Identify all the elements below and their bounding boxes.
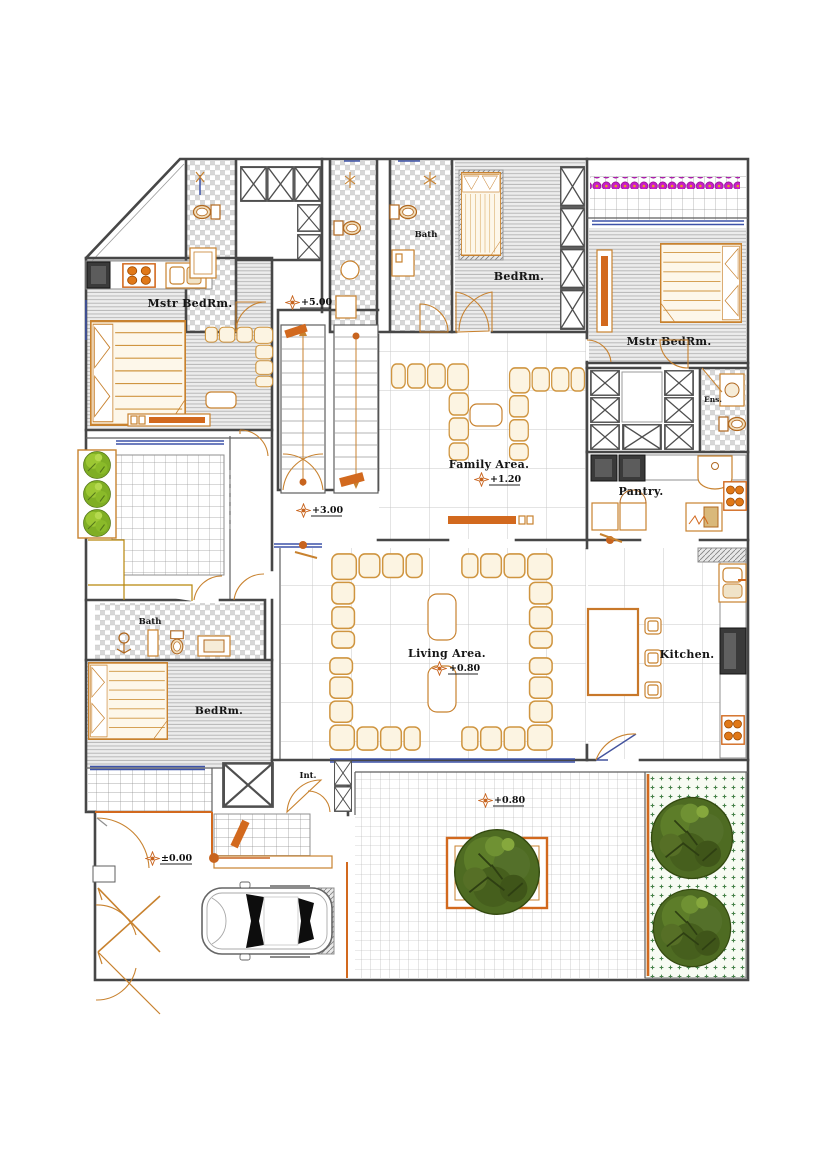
wardrobe-icon <box>335 787 352 811</box>
bed-icon <box>89 663 168 739</box>
wardrobe-icon <box>623 425 661 449</box>
coffee-table-icon <box>428 594 456 640</box>
wardrobe-icon <box>591 398 619 422</box>
bush-icon <box>84 481 111 508</box>
family-area-label: Family Area. <box>449 458 529 471</box>
appliance-highlight <box>91 266 106 284</box>
fridge-highlight <box>724 633 736 669</box>
level-grade: ±0.00 <box>146 852 193 865</box>
dressing-room <box>591 371 693 449</box>
wardrobe-icon <box>224 763 273 806</box>
tall-wardrobe-icon <box>597 250 612 332</box>
mstr-bedroom-right-label: Mstr BedRm. <box>627 335 712 348</box>
cabinet-knob <box>396 254 402 262</box>
toilet-icon <box>171 631 184 654</box>
bedroom-top-label: BedRm. <box>494 270 544 283</box>
cabinet-icon <box>392 250 414 276</box>
entry-door-arc <box>287 780 321 812</box>
vanity-icon <box>198 636 230 656</box>
pantry-cooktop-icon <box>724 482 746 510</box>
basin-icon <box>341 261 359 279</box>
gate-icons <box>93 818 160 1014</box>
bath-top-label: Bath <box>415 230 438 240</box>
column-dot <box>209 853 219 863</box>
bath-top-floor <box>390 161 452 332</box>
wardrobe-icon <box>268 167 293 201</box>
gate-post <box>93 866 115 882</box>
pantry-chair <box>620 503 646 530</box>
kitchen-cabinet <box>698 548 746 562</box>
staircase <box>281 324 378 493</box>
courtyard-tile <box>112 455 224 575</box>
svg-text:±0.00: ±0.00 <box>161 853 192 864</box>
wardrobe-icon <box>335 761 352 785</box>
patio <box>447 830 547 915</box>
walkin-closet-top <box>241 167 320 259</box>
living-area-label: Living Area. <box>408 647 486 660</box>
tv-console-icon <box>448 516 533 524</box>
bed-icon <box>91 321 185 425</box>
column-dot <box>299 541 307 549</box>
roof-eave-line <box>90 164 184 263</box>
ensuite-label: Ens. <box>704 395 722 404</box>
wardrobe-icon <box>561 208 585 247</box>
partition-icon <box>148 630 158 656</box>
bar-stools <box>645 618 661 698</box>
bath-lower-door <box>194 576 222 600</box>
entry-door-arc2 <box>308 791 330 812</box>
courtyard-door-arc2 <box>234 574 264 600</box>
pantry-chair <box>592 503 618 530</box>
wardrobe-icon <box>295 167 320 201</box>
bed-icon <box>461 173 500 256</box>
courtyard-window <box>116 441 224 444</box>
toilet-icon <box>194 205 221 219</box>
tree-icon <box>653 889 730 966</box>
svg-text:+1.20: +1.20 <box>490 474 521 485</box>
vanity-icon <box>720 374 744 406</box>
bedroom-lower-label: BedRm. <box>195 705 243 717</box>
wardrobe-icon <box>591 425 619 449</box>
appliance-highlight <box>623 459 640 477</box>
wardrobe-icon <box>665 398 693 422</box>
courtyard-door-arc <box>240 430 268 456</box>
toilet-icon <box>719 417 746 431</box>
kitchen-sink-icon <box>719 564 746 602</box>
pantry: Pantry. <box>591 455 746 531</box>
mstr-bedroom-left-label: Mstr BedRm. <box>148 297 233 310</box>
bush-icon <box>84 510 111 537</box>
level-stairs-upper: +5.00 <box>286 296 333 309</box>
toilet-icon <box>390 205 417 219</box>
wardrobe-icon <box>561 167 585 206</box>
wardrobe-icon <box>241 167 266 201</box>
family-level-marker: +1.20 <box>475 473 522 486</box>
bath-lower-label: Bath <box>139 617 162 627</box>
svg-text:+0.80: +0.80 <box>494 795 525 806</box>
dressing-bench <box>622 372 662 422</box>
wardrobe-icon <box>298 235 321 259</box>
wardrobe-icon <box>665 371 693 395</box>
flower-row <box>590 177 740 189</box>
dresser-icon <box>128 414 210 426</box>
svg-text:+0.80: +0.80 <box>449 663 480 674</box>
wardrobe-icon <box>298 205 321 231</box>
wardrobe-icon <box>665 425 693 449</box>
tree-icon <box>652 798 733 879</box>
terrace-strip <box>88 770 212 811</box>
car-icon <box>202 882 334 960</box>
floor-plan-page: Mstr BedRm. Bath BedRm. Mstr BedRm. <box>0 0 828 1171</box>
appliance-highlight <box>595 459 612 477</box>
dishwasher-icon <box>686 503 722 531</box>
kitchenette-cooktop-icon <box>123 264 155 287</box>
svg-text:+5.00: +5.00 <box>301 297 332 308</box>
wardrobe-icon <box>561 290 585 329</box>
floor-plan-canvas: Mstr BedRm. Bath BedRm. Mstr BedRm. <box>0 0 828 1171</box>
balcony-window <box>592 221 744 225</box>
living-level-marker: +0.80 <box>433 662 481 675</box>
bidet-icon <box>336 296 356 318</box>
side-table-icon <box>206 392 236 408</box>
svg-text:+3.00: +3.00 <box>312 505 343 516</box>
kitchen-cooktop-icon <box>722 716 744 744</box>
bed-icon <box>661 244 742 322</box>
pantry-label: Pantry. <box>618 485 663 498</box>
interior-label: Int. <box>299 771 316 781</box>
island-icon <box>588 609 638 695</box>
toilet-icon <box>334 221 361 235</box>
hall-window <box>274 544 322 547</box>
tree-icon <box>455 830 540 915</box>
kitchen-label: Kitchen. <box>660 648 715 661</box>
wardrobe-icon <box>561 249 585 288</box>
entry-steps <box>214 814 310 856</box>
wardrobe-icon <box>591 371 619 395</box>
bush-icon <box>84 452 111 479</box>
coffee-table-icon <box>470 404 502 426</box>
level-stairs-lower: +3.00 <box>297 504 344 517</box>
level-patio: +0.80 <box>479 794 526 807</box>
